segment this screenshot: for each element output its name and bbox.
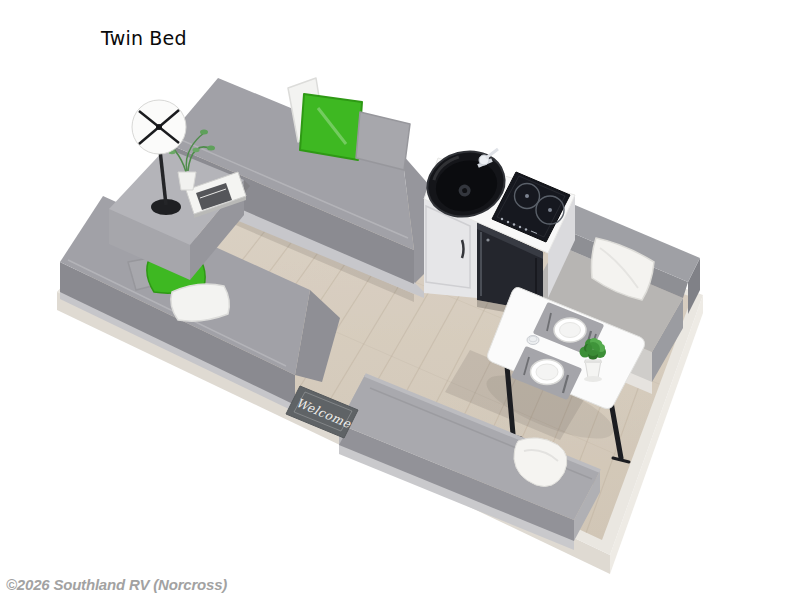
copyright-watermark: ©2026 Southland RV (Norcross) (6, 576, 227, 593)
floorplan-3d-view: Welcome (0, 0, 800, 600)
bed-pillow-white (171, 284, 229, 321)
floorplan-page: Twin Bed (0, 0, 800, 600)
drinking-glass (527, 336, 539, 345)
